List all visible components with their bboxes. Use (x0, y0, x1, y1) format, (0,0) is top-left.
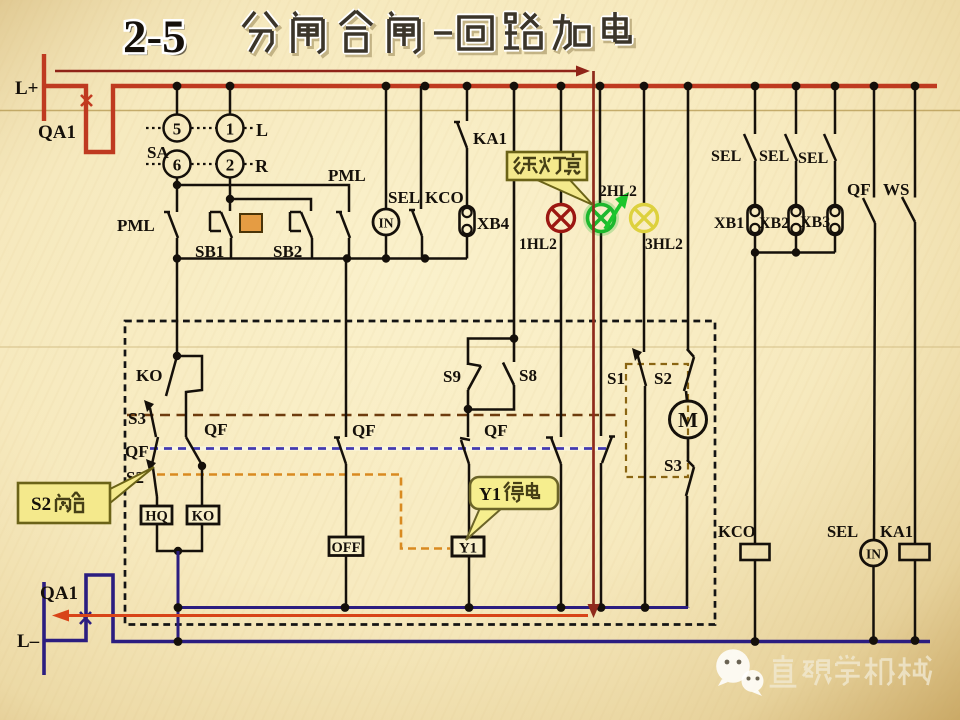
svg-text:2HL2: 2HL2 (599, 183, 637, 200)
svg-text:S8: S8 (519, 366, 537, 385)
svg-text:S9: S9 (443, 367, 461, 386)
svg-text:2: 2 (226, 156, 235, 175)
svg-text:XB2: XB2 (759, 215, 789, 232)
svg-text:L: L (256, 120, 268, 140)
svg-text:3HL2: 3HL2 (645, 236, 683, 253)
svg-text:KA1: KA1 (473, 129, 507, 148)
svg-text:M: M (678, 408, 698, 432)
svg-text:PML: PML (328, 166, 366, 185)
svg-text:OFF: OFF (332, 540, 361, 556)
svg-text:XB3: XB3 (800, 214, 830, 231)
svg-text:S3: S3 (128, 409, 146, 428)
svg-text:IN: IN (378, 216, 393, 231)
svg-text:S2: S2 (31, 494, 51, 515)
svg-text:SEL: SEL (827, 522, 858, 541)
svg-text:KCO: KCO (425, 188, 464, 207)
svg-text:L+: L+ (15, 78, 39, 99)
svg-text:KA1: KA1 (880, 522, 913, 541)
svg-text:WS: WS (883, 180, 909, 199)
svg-text:KO: KO (192, 509, 215, 525)
svg-text:QA1: QA1 (40, 583, 78, 604)
svg-text:SEL: SEL (759, 148, 789, 165)
svg-text:1: 1 (226, 120, 235, 139)
svg-text:QF: QF (204, 420, 228, 439)
svg-text:QF: QF (847, 180, 871, 199)
svg-text:1HL2: 1HL2 (519, 236, 557, 253)
svg-text:5: 5 (173, 120, 182, 139)
svg-text:Y1: Y1 (479, 484, 501, 504)
svg-text:2-5: 2-5 (123, 11, 186, 63)
svg-text:S2: S2 (654, 369, 672, 388)
svg-text:QF: QF (352, 421, 376, 440)
svg-text:6: 6 (173, 156, 182, 175)
svg-text:S3: S3 (664, 456, 682, 475)
svg-text:SA: SA (147, 143, 169, 162)
svg-text:QA1: QA1 (38, 122, 76, 143)
svg-text:QF: QF (125, 442, 149, 461)
svg-text:KCO: KCO (718, 522, 756, 541)
svg-text:HQ: HQ (145, 509, 168, 525)
svg-text:PML: PML (117, 216, 155, 235)
svg-text:R: R (255, 156, 269, 176)
svg-text:SEL: SEL (388, 188, 420, 207)
svg-text:SEL: SEL (711, 148, 741, 165)
svg-text:IN: IN (866, 547, 881, 562)
svg-text:XB4: XB4 (477, 214, 510, 233)
svg-text:Y1: Y1 (459, 541, 477, 557)
svg-text:XB1: XB1 (714, 215, 744, 232)
svg-text:S1: S1 (607, 369, 625, 388)
svg-text:SEL: SEL (798, 150, 828, 167)
svg-text:L–: L– (17, 631, 40, 652)
svg-text:QF: QF (484, 421, 508, 440)
svg-text:KO: KO (136, 366, 162, 385)
